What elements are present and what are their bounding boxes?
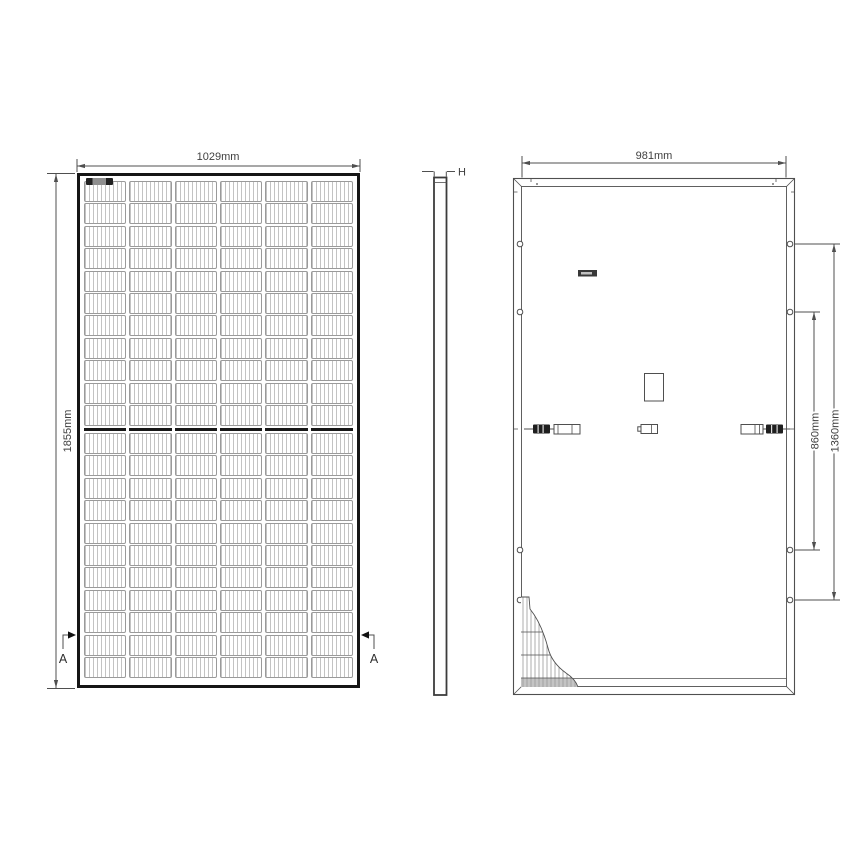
side-thickness-label: H — [458, 167, 466, 179]
top-drain-dot-left — [536, 183, 538, 185]
inner-mount-span-label: 860mm — [810, 413, 822, 450]
back-width-dimension: 981mm — [522, 150, 786, 178]
mount-hole — [787, 309, 793, 315]
drawing-linework: 1029mm 1855mm A A H — [0, 0, 868, 868]
back-view — [514, 179, 795, 695]
mount-hole — [517, 547, 523, 553]
section-label-right: A — [370, 652, 379, 666]
connector-black — [533, 425, 550, 434]
mount-hole — [517, 241, 523, 247]
side-profile — [434, 178, 447, 696]
inner-mount-span-dimension: 860mm — [795, 312, 822, 550]
serial-label — [578, 270, 597, 277]
section-marker-left: A — [59, 631, 76, 666]
section-marker-right: A — [361, 631, 379, 666]
technical-drawing-canvas: 1029mm 1855mm A A H — [0, 0, 868, 868]
side-view: H — [422, 167, 466, 696]
junction-box — [645, 374, 664, 402]
top-drain-dot-right — [772, 183, 774, 185]
outer-mount-span-label: 1360mm — [830, 410, 842, 453]
mount-hole — [787, 597, 793, 603]
front-height-label: 1855mm — [62, 410, 74, 453]
front-width-dimension: 1029mm — [77, 151, 360, 172]
mount-hole — [787, 547, 793, 553]
mount-hole — [517, 309, 523, 315]
connector-assembly-middle — [638, 425, 658, 434]
section-label-left: A — [59, 652, 68, 666]
connector-white — [641, 425, 658, 434]
front-height-dimension: 1855mm — [47, 174, 75, 689]
connector-black — [766, 425, 783, 434]
back-outer-frame — [514, 179, 795, 695]
back-width-label: 981mm — [636, 150, 673, 162]
mount-hole — [787, 241, 793, 247]
front-width-label: 1029mm — [197, 151, 240, 163]
